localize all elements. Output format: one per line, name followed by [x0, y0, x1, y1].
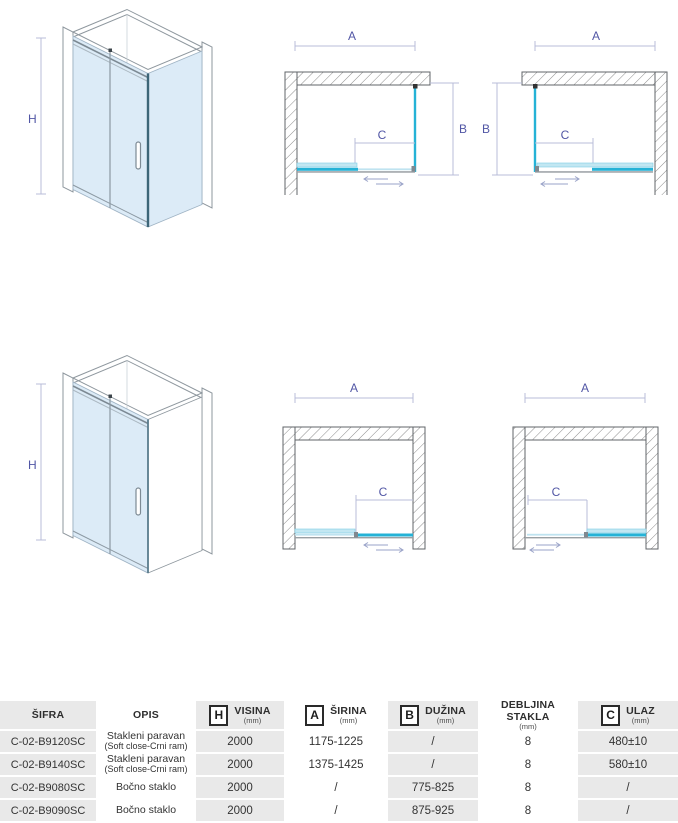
wall-post-left	[63, 373, 73, 538]
opis-line1: Bočno staklo	[116, 805, 176, 816]
row-2-visina: 2000	[196, 754, 284, 775]
sliding-door-top-view	[585, 534, 646, 537]
header-title: VISINA	[234, 705, 270, 717]
row-1-opis: Stakleni paravan (Soft close-Crni ram)	[98, 731, 194, 752]
header-unit: (mm)	[437, 717, 455, 726]
wall-right	[655, 72, 667, 195]
row-3-visina: 2000	[196, 777, 284, 798]
dim-label-a: A	[350, 383, 358, 395]
row-4-sirina: /	[286, 800, 386, 821]
row-2-sirina: 1375-1425	[286, 754, 386, 775]
fixed-glass-top-view	[537, 163, 653, 167]
door-handle	[136, 142, 141, 169]
table-header-visina: H VISINA (mm)	[196, 701, 284, 729]
wall-right	[413, 427, 425, 549]
row-1-debljina: 8	[480, 731, 576, 752]
table-header-debljina: DEBLJINA STAKLA (mm)	[480, 701, 576, 729]
header-title: ŠIRINA	[330, 705, 367, 717]
row-2-duzina: /	[388, 754, 478, 775]
iso-drawing-with-side-glass: H	[28, 2, 238, 247]
header-title: DUŽINA	[425, 705, 466, 717]
row-2-ulaz: 580±10	[578, 754, 678, 775]
sliding-door-top-view	[592, 168, 653, 171]
header-title: DEBLJINA STAKLA	[480, 699, 576, 723]
row-1-visina: 2000	[196, 731, 284, 752]
table-header-ulaz: C ULAZ (mm)	[578, 701, 678, 729]
sliding-door-top-view	[354, 534, 413, 537]
row-3-sifra: C-02-B9080SC	[0, 777, 96, 798]
dim-label-c: C	[561, 128, 570, 142]
row-2-sifra: C-02-B9140SC	[0, 754, 96, 775]
row-4-opis: Bočno staklo	[98, 800, 194, 821]
header-unit: (mm)	[632, 717, 650, 726]
letter-box-b: B	[400, 705, 419, 726]
dim-label-a: A	[581, 383, 589, 395]
dim-label-b: B	[482, 122, 490, 136]
plan-view-niche-right: A C	[490, 383, 670, 563]
letter-box-a: A	[305, 705, 324, 726]
row-3-ulaz: /	[578, 777, 678, 798]
row-4-sifra: C-02-B9090SC	[0, 800, 96, 821]
wall-left	[285, 72, 297, 195]
row-4-duzina: 875-925	[388, 800, 478, 821]
iso-drawing-door-only: H	[28, 342, 238, 592]
header-unit: (mm)	[244, 717, 262, 726]
header-title: OPIS	[133, 709, 159, 721]
row-4-ulaz: /	[578, 800, 678, 821]
side-glass-panel	[148, 51, 202, 227]
side-panel-outline	[148, 397, 202, 573]
table-header-duzina: B DUŽINA (mm)	[388, 701, 478, 729]
plan-view-corner-left: A B C	[276, 20, 471, 195]
row-3-debljina: 8	[480, 777, 576, 798]
row-2-opis: Stakleni paravan (Soft close-Crni ram)	[98, 754, 194, 775]
table-header-sifra: ŠIFRA	[0, 701, 96, 729]
table-header-sirina: A ŠIRINA (mm)	[286, 701, 386, 729]
header-title: ŠIFRA	[32, 709, 65, 721]
floor-track	[297, 171, 415, 173]
row-3-sirina: /	[286, 777, 386, 798]
fixed-glass-top-view	[587, 529, 646, 533]
dim-label-a: A	[348, 29, 356, 43]
wall-post-right	[202, 388, 212, 554]
dim-label-a: A	[592, 29, 600, 43]
row-4-debljina: 8	[480, 800, 576, 821]
wall-top	[522, 72, 667, 85]
dim-label-c: C	[379, 485, 388, 499]
dim-label-h: H	[28, 112, 37, 126]
wall-top	[283, 427, 425, 440]
dim-label-b: B	[459, 122, 467, 136]
wall-post-left	[63, 27, 73, 192]
opis-line2: (Soft close-Crni ram)	[104, 765, 187, 775]
row-4-visina: 2000	[196, 800, 284, 821]
wall-post-right	[202, 42, 212, 208]
letter-box-c: C	[601, 705, 620, 726]
row-1-sirina: 1175-1225	[286, 731, 386, 752]
table-header-opis: OPIS	[98, 701, 194, 729]
dim-label-h: H	[28, 458, 37, 472]
sliding-door-top-view	[297, 168, 358, 171]
opis-line1: Bočno staklo	[116, 782, 176, 793]
row-1-duzina: /	[388, 731, 478, 752]
spec-sheet: H A	[0, 0, 678, 823]
fixed-glass-top-view	[297, 163, 357, 167]
row-3-opis: Bočno staklo	[98, 777, 194, 798]
fixed-glass-top-view	[295, 529, 355, 533]
dim-label-c: C	[378, 128, 387, 142]
spec-table: ŠIFRA OPIS H VISINA (mm) A ŠIRINA (mm) B…	[0, 701, 678, 821]
door-handle	[136, 488, 141, 515]
wall-top	[513, 427, 658, 440]
floor-track	[535, 171, 653, 173]
plan-view-niche-left: A C	[276, 383, 441, 563]
row-1-ulaz: 480±10	[578, 731, 678, 752]
opis-line2: (Soft close-Crni ram)	[104, 742, 187, 752]
row-3-duzina: 775-825	[388, 777, 478, 798]
wall-right	[646, 427, 658, 549]
plan-view-corner-right: A B C	[480, 20, 678, 195]
wall-left	[513, 427, 525, 549]
header-unit: (mm)	[340, 717, 358, 726]
row-2-debljina: 8	[480, 754, 576, 775]
wall-top	[285, 72, 430, 85]
row-1-sifra: C-02-B9120SC	[0, 731, 96, 752]
header-title: ULAZ	[626, 705, 655, 717]
dim-label-c: C	[552, 485, 561, 499]
letter-box-h: H	[209, 705, 228, 726]
wall-left	[283, 427, 295, 549]
